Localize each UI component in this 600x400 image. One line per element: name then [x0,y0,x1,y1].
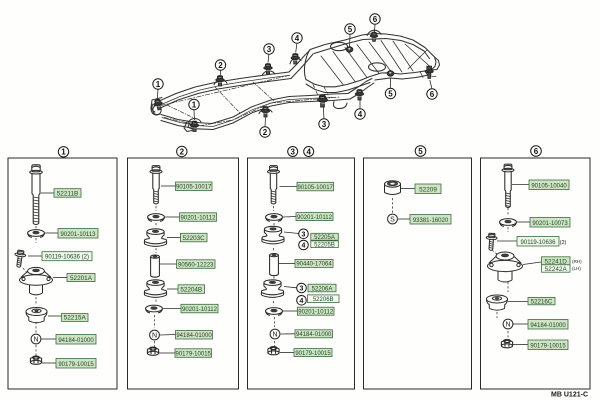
svg-text:52211B: 52211B [57,190,79,197]
svg-text:3: 3 [322,120,327,129]
svg-text:3: 3 [267,45,272,54]
svg-text:90179-10015: 90179-10015 [530,343,566,349]
svg-text:52241D: 52241D [545,258,568,265]
svg-text:90105-10017: 90105-10017 [176,185,212,191]
svg-text:MB U121-C: MB U121-C [551,392,588,399]
svg-text:3: 3 [300,286,304,293]
svg-text:90201-10073: 90201-10073 [532,221,568,227]
svg-text:90201-10112: 90201-10112 [297,215,333,221]
svg-text:2: 2 [180,147,185,156]
svg-text:4: 4 [306,147,311,156]
svg-text:1: 1 [192,100,197,109]
svg-text:4: 4 [302,243,306,250]
svg-text:52215A: 52215A [64,315,87,322]
svg-text:90179-10015: 90179-10015 [58,362,94,368]
svg-text:(RH): (RH) [572,259,582,264]
svg-text:1: 1 [156,80,161,89]
svg-text:90105-10017: 90105-10017 [298,185,334,191]
svg-text:52209: 52209 [419,186,437,193]
svg-text:90201-10112: 90201-10112 [298,310,334,316]
svg-text:4: 4 [295,34,300,43]
svg-text:52204B: 52204B [180,286,202,293]
svg-text:52203C: 52203C [183,235,206,242]
svg-text:94184-01000: 94184-01000 [530,323,566,329]
svg-text:52206A: 52206A [312,286,333,292]
svg-text:94184-01000: 94184-01000 [176,333,212,339]
svg-text:1: 1 [61,148,66,157]
svg-text:5: 5 [348,25,353,34]
svg-text:90560-12223: 90560-12223 [178,262,214,268]
svg-text:5: 5 [418,147,423,156]
svg-text:52206B: 52206B [313,297,334,303]
svg-text:4: 4 [358,110,363,119]
svg-text:4: 4 [300,298,304,305]
svg-text:2: 2 [218,61,223,70]
svg-text:90179-10015: 90179-10015 [295,351,331,357]
svg-text:6: 6 [534,147,539,156]
svg-text:90119-10636: 90119-10636 [521,240,557,246]
svg-text:3: 3 [290,147,295,156]
svg-text:90201-10112: 90201-10112 [181,215,217,221]
svg-text:5: 5 [388,89,393,98]
svg-text:52205A: 52205A [314,235,335,241]
svg-text:94184-01000: 94184-01000 [296,332,332,338]
svg-text:52205B: 52205B [314,242,335,248]
svg-text:S: S [390,216,395,223]
svg-text:2: 2 [263,128,268,137]
svg-text:6: 6 [430,90,435,99]
svg-text:6: 6 [373,15,378,24]
svg-text:93381-16020: 93381-16020 [413,218,449,224]
svg-text:52201A: 52201A [70,275,93,282]
svg-text:90201-10113: 90201-10113 [61,232,97,238]
svg-text:52242A: 52242A [545,266,568,273]
svg-text:(LH): (LH) [572,266,581,271]
svg-text:90119-10636 (2): 90119-10636 (2) [45,255,89,261]
svg-text:94184-01000: 94184-01000 [58,338,94,344]
svg-text:90201-10112: 90201-10112 [182,307,218,313]
svg-text:90179-10015: 90179-10015 [176,351,212,357]
svg-text:(2): (2) [560,240,567,246]
svg-text:90440-17064: 90440-17064 [296,262,332,268]
svg-text:90105-10040: 90105-10040 [531,183,567,189]
svg-text:52216C: 52216C [531,298,553,305]
svg-text:3: 3 [302,231,306,238]
